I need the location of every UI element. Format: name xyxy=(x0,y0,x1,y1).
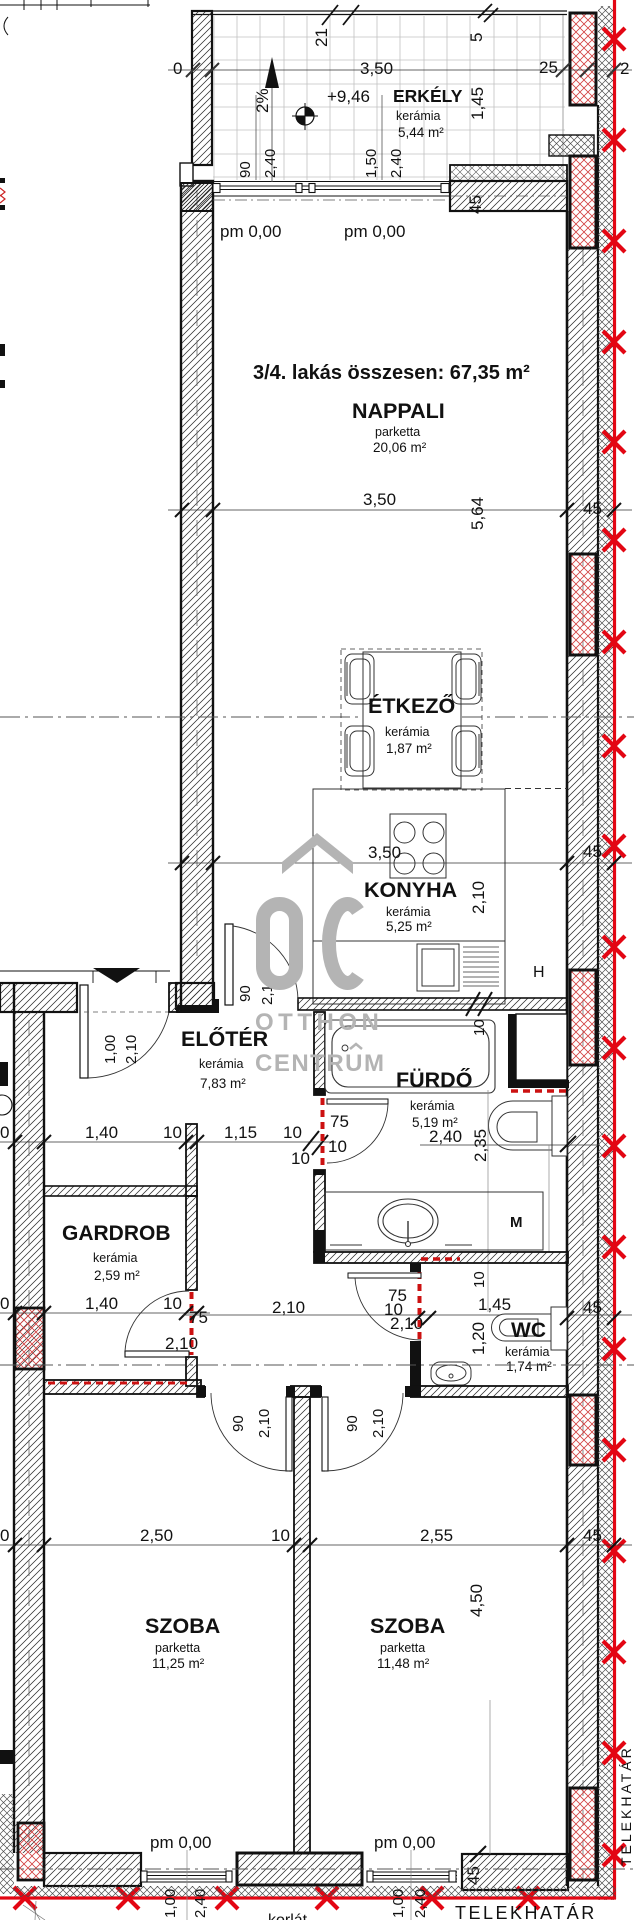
svg-text:KONYHA: KONYHA xyxy=(364,878,457,902)
svg-text:2: 2 xyxy=(620,59,629,78)
svg-text:11,25 m²: 11,25 m² xyxy=(152,1656,205,1671)
svg-text:FÜRDŐ: FÜRDŐ xyxy=(396,1067,472,1092)
svg-text:75: 75 xyxy=(189,1308,208,1327)
svg-text:kerámia: kerámia xyxy=(93,1251,138,1265)
svg-text:3,50: 3,50 xyxy=(368,843,401,862)
svg-text:5,44 m²: 5,44 m² xyxy=(398,125,444,140)
svg-text:WC: WC xyxy=(511,1319,546,1342)
svg-text:90: 90 xyxy=(230,1415,247,1432)
svg-text:kerámia: kerámia xyxy=(386,905,431,919)
svg-text:H: H xyxy=(533,964,545,981)
svg-text:0: 0 xyxy=(173,59,182,78)
svg-text:10: 10 xyxy=(283,1123,302,1142)
svg-text:2,40: 2,40 xyxy=(412,1889,429,1918)
svg-text:1,87 m²: 1,87 m² xyxy=(386,741,432,756)
svg-text:0: 0 xyxy=(0,1526,9,1545)
svg-text:NAPPALI: NAPPALI xyxy=(352,399,445,423)
svg-text:10: 10 xyxy=(471,1019,488,1036)
svg-text:2,10: 2,10 xyxy=(256,1409,273,1438)
svg-text:2,35: 2,35 xyxy=(471,1129,490,1162)
svg-text:90: 90 xyxy=(237,985,254,1002)
svg-text:korlát: korlát xyxy=(268,1912,308,1920)
svg-text:90: 90 xyxy=(344,1415,361,1432)
svg-text:SZOBA: SZOBA xyxy=(370,1614,445,1638)
svg-text:pm 0,00: pm 0,00 xyxy=(344,222,405,241)
svg-text:3/4. lakás összesen: 67,35 m²: 3/4. lakás összesen: 67,35 m² xyxy=(253,362,530,384)
svg-text:10: 10 xyxy=(328,1137,347,1156)
svg-text:2,40: 2,40 xyxy=(429,1127,462,1146)
svg-text:kerámia: kerámia xyxy=(199,1057,244,1071)
svg-text:1,50: 1,50 xyxy=(363,149,380,178)
svg-text:10: 10 xyxy=(271,1526,290,1545)
svg-text:3,50: 3,50 xyxy=(363,490,396,509)
svg-text:kerámia: kerámia xyxy=(410,1099,455,1113)
svg-text:1,20: 1,20 xyxy=(469,1322,488,1355)
svg-text:25: 25 xyxy=(539,58,558,77)
svg-text:parketta: parketta xyxy=(380,1641,425,1655)
svg-text:75: 75 xyxy=(330,1112,349,1131)
svg-text:2,10: 2,10 xyxy=(272,1298,305,1317)
svg-text:M: M xyxy=(510,1214,523,1231)
svg-text:2,40: 2,40 xyxy=(388,149,405,178)
svg-text:parketta: parketta xyxy=(375,425,420,439)
svg-text:2,55: 2,55 xyxy=(420,1526,453,1545)
svg-text:10: 10 xyxy=(471,1271,488,1288)
svg-text:2,10: 2,10 xyxy=(165,1334,198,1353)
svg-text:TELEKHATÁR: TELEKHATÁR xyxy=(618,1745,634,1866)
svg-text:20,06 m²: 20,06 m² xyxy=(373,440,427,455)
svg-text:1,45: 1,45 xyxy=(478,1295,511,1314)
svg-text:45: 45 xyxy=(583,1298,602,1317)
svg-text:5: 5 xyxy=(467,33,486,42)
svg-text:0: 0 xyxy=(0,1123,9,1142)
svg-text:10: 10 xyxy=(163,1123,182,1142)
svg-text:pm 0,00: pm 0,00 xyxy=(150,1833,211,1852)
svg-text:0: 0 xyxy=(0,1294,9,1313)
svg-text:7,83 m²: 7,83 m² xyxy=(200,1076,246,1091)
svg-text:GARDROB: GARDROB xyxy=(62,1222,171,1245)
svg-text:1,40: 1,40 xyxy=(85,1294,118,1313)
svg-text:1,45: 1,45 xyxy=(468,87,487,120)
svg-text:kerámia: kerámia xyxy=(505,1345,550,1359)
svg-text:5,64: 5,64 xyxy=(468,497,487,530)
svg-text:1,00: 1,00 xyxy=(162,1889,179,1918)
svg-text:kerámia: kerámia xyxy=(396,109,441,123)
svg-text:2,10: 2,10 xyxy=(390,1314,423,1333)
svg-text:ÉTKEZŐ: ÉTKEZŐ xyxy=(368,693,455,718)
svg-text:90: 90 xyxy=(237,161,254,178)
svg-text:OTTHON: OTTHON xyxy=(255,1009,383,1036)
svg-text:45: 45 xyxy=(466,195,485,214)
svg-text:2,10: 2,10 xyxy=(370,1409,387,1438)
svg-text:pm 0,00: pm 0,00 xyxy=(374,1833,435,1852)
svg-text:pm 0,00: pm 0,00 xyxy=(220,222,281,241)
svg-text:kerámia: kerámia xyxy=(385,725,430,739)
svg-text:ERKÉLY: ERKÉLY xyxy=(393,85,463,106)
svg-text:1,40: 1,40 xyxy=(85,1123,118,1142)
svg-text:CENTRUM: CENTRUM xyxy=(255,1050,386,1077)
svg-text:1,74 m²: 1,74 m² xyxy=(506,1359,552,1374)
svg-text:1,00: 1,00 xyxy=(102,1035,119,1064)
svg-text:45: 45 xyxy=(583,842,602,861)
svg-text:TELEKHATÁR: TELEKHATÁR xyxy=(455,1903,597,1920)
svg-text:1,15: 1,15 xyxy=(224,1123,257,1142)
svg-text:45: 45 xyxy=(583,499,602,518)
svg-text:10: 10 xyxy=(291,1149,310,1168)
svg-text:2,10: 2,10 xyxy=(469,881,488,914)
svg-text:parketta: parketta xyxy=(155,1641,200,1655)
svg-text:45: 45 xyxy=(583,1526,602,1545)
svg-text:2,59 m²: 2,59 m² xyxy=(94,1268,140,1283)
svg-text:10: 10 xyxy=(163,1294,182,1313)
svg-text:2,50: 2,50 xyxy=(140,1526,173,1545)
svg-text:2,10: 2,10 xyxy=(123,1035,140,1064)
svg-text:+9,46: +9,46 xyxy=(327,87,370,106)
svg-text:SZOBA: SZOBA xyxy=(145,1614,220,1638)
svg-text:21: 21 xyxy=(312,28,331,47)
svg-text:3,50: 3,50 xyxy=(360,59,393,78)
svg-text:4,50: 4,50 xyxy=(467,1584,486,1617)
svg-text:11,48 m²: 11,48 m² xyxy=(377,1656,430,1671)
svg-text:5,25 m²: 5,25 m² xyxy=(386,919,432,934)
svg-text:2,40: 2,40 xyxy=(262,149,279,178)
svg-text:1,00: 1,00 xyxy=(390,1889,407,1918)
svg-text:2,40: 2,40 xyxy=(192,1889,209,1918)
